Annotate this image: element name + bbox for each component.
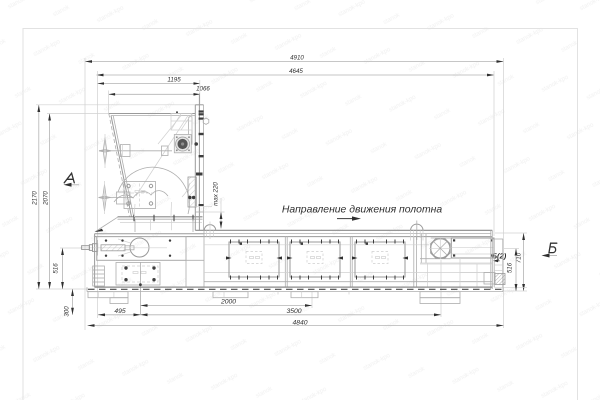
svg-text:3500: 3500 [286, 308, 301, 315]
svg-text:2000: 2000 [220, 299, 236, 306]
svg-text:Направление движения полотна: Направление движения полотна [282, 205, 442, 216]
svg-text:max 220: max 220 [213, 182, 220, 206]
svg-text:495: 495 [114, 308, 126, 315]
svg-text:2170: 2170 [32, 191, 39, 206]
svg-text:4840: 4840 [292, 320, 307, 327]
svg-text:4645: 4645 [289, 68, 303, 75]
svg-text:1066: 1066 [196, 86, 210, 93]
svg-text:300: 300 [64, 306, 71, 317]
svg-text:2070: 2070 [43, 191, 50, 206]
svg-text:4910: 4910 [290, 55, 304, 62]
svg-text:516: 516 [507, 262, 514, 273]
svg-text:516: 516 [53, 263, 60, 274]
svg-text:1195: 1195 [167, 77, 181, 84]
